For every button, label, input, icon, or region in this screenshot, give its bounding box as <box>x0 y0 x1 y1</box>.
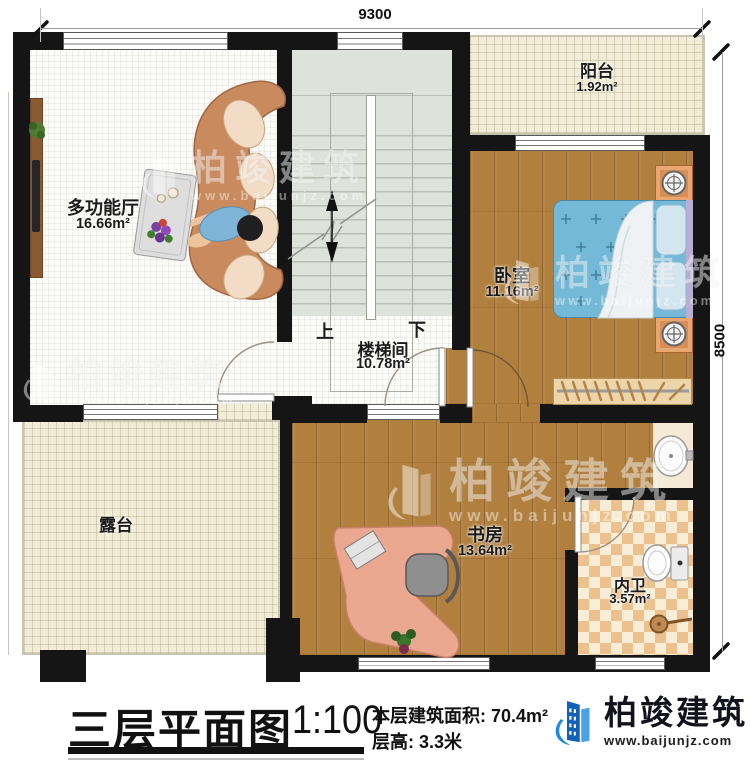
wardrobe <box>553 378 692 405</box>
floor-height-row: 层高: 3.3米 <box>372 728 462 754</box>
wall-bathroom-left-lower <box>565 550 578 672</box>
floor-height-value: 3.3米 <box>419 732 462 752</box>
dimension-line-top <box>40 28 703 29</box>
stair-up-label: 上 <box>312 318 338 344</box>
stair-down-label: 下 <box>404 316 430 342</box>
window-hall-terrace <box>83 404 218 420</box>
nightstand-bottom <box>655 316 693 353</box>
title-underline-thin <box>68 758 364 760</box>
stair-handrail <box>366 95 376 320</box>
wall-landing-bottom <box>292 404 367 423</box>
floorplan-page: 9300 8500 多功能厅 16.66m² 楼梯间 10.78m² 上 下 卧… <box>0 0 750 764</box>
terrace-floor <box>22 420 280 655</box>
brand-name: 柏竣建筑 <box>604 696 748 729</box>
dimension-top-value: 9300 <box>340 6 410 23</box>
room-area-stairwell: 10.78m² <box>333 356 433 372</box>
hall-landing-opening <box>277 342 292 404</box>
wall-stairwell-bedroom <box>452 32 470 350</box>
wall-bedroom-bottom <box>540 404 693 423</box>
plan-scale: 1:100 <box>292 698 382 743</box>
bed-headboard <box>686 200 693 318</box>
nightstand-top <box>655 165 693 202</box>
window-study-bottom <box>358 657 490 670</box>
floor-height-label: 层高: <box>372 732 414 752</box>
wall-hall-stairwell <box>277 32 292 342</box>
window-stairwell-top <box>337 32 403 50</box>
dimension-right-value: 8500 <box>712 309 729 373</box>
dimension-ext-top-right <box>702 8 703 42</box>
wall-bedroom-door-stub <box>440 404 472 423</box>
bedroom-door-threshold <box>472 404 540 423</box>
plan-outer-boundary-line <box>8 92 9 655</box>
bed <box>553 200 693 318</box>
terrace-door-threshold <box>218 404 272 420</box>
door-nook-floor <box>446 348 468 404</box>
study-corridor-floor <box>577 423 653 490</box>
terrace-pillar-right <box>266 618 300 682</box>
room-label-terrace: 露台 <box>56 511 176 536</box>
floor-area-row: 本层建筑面积: 70.4m² <box>372 702 548 728</box>
room-area-study: 13.64m² <box>425 543 545 559</box>
brand-logo-icon <box>549 692 597 752</box>
wall-left <box>13 32 30 422</box>
room-area-hall: 16.66m² <box>43 216 163 232</box>
floor-area-value: 70.4m² <box>491 706 548 726</box>
window-bathroom-bottom <box>595 657 665 670</box>
wall-bedroom-top-left <box>452 135 515 151</box>
title-underline-bar <box>68 747 364 754</box>
brand-website: www.baijunjz.com <box>604 733 748 748</box>
wall-bathroom-left-upper <box>565 488 578 502</box>
sink-alcove-floor <box>653 423 693 488</box>
sliding-door-landing-study <box>367 404 440 420</box>
room-area-bathroom: 3.57m² <box>570 591 690 606</box>
room-area-balcony: 1.92m² <box>537 79 657 94</box>
wall-right <box>693 135 710 672</box>
tv-screen <box>32 160 40 232</box>
window-hall-top <box>63 32 228 50</box>
window-bedroom-balcony <box>515 135 645 151</box>
dimension-ext-top-left <box>40 8 41 42</box>
wall-bathroom-top <box>565 488 693 500</box>
wall-hall-bottom-stub <box>30 405 83 422</box>
room-area-bedroom: 11.16m² <box>452 284 572 300</box>
terrace-pillar-left <box>40 650 86 682</box>
floor-area-label: 本层建筑面积: <box>372 706 486 726</box>
brand-block: 柏竣建筑 www.baijunjz.com <box>549 692 748 752</box>
